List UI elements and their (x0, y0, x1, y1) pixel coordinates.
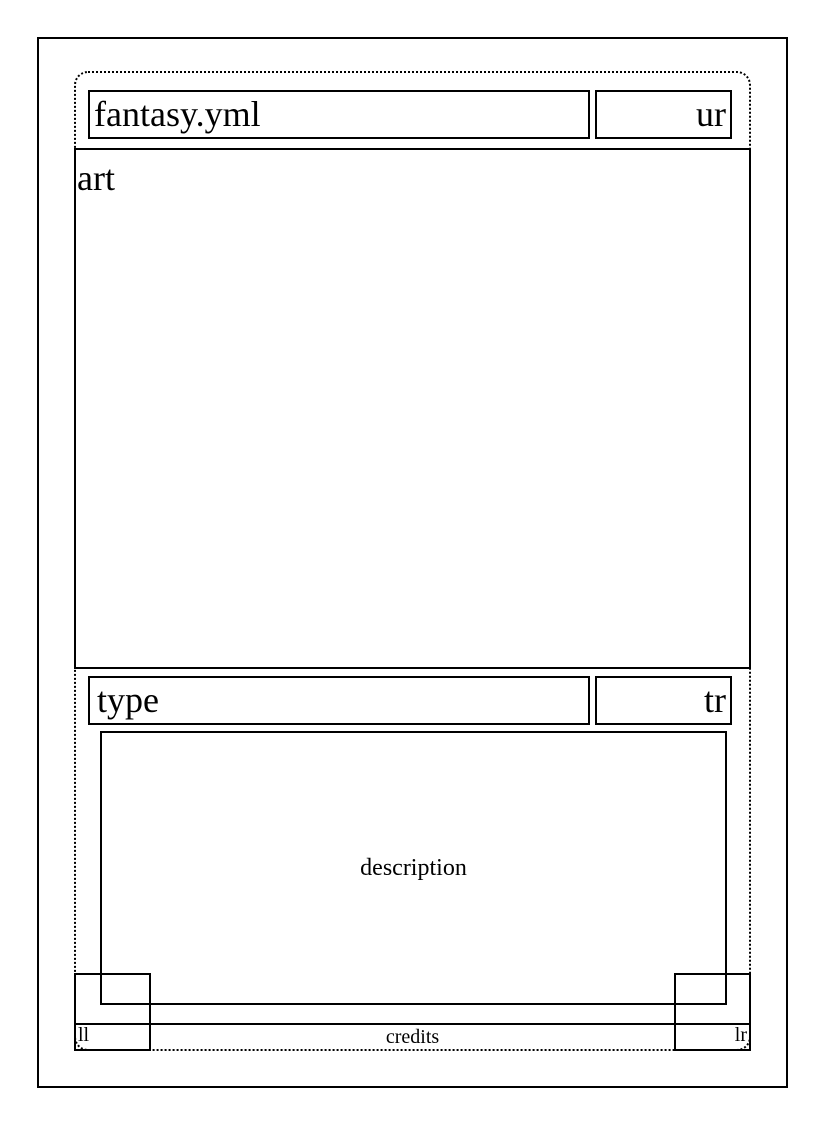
lower-left-label: ll (78, 1024, 89, 1046)
upper-right-label: ur (696, 94, 726, 134)
description-label: description (360, 855, 467, 882)
lower-left-box: ll (74, 973, 151, 1051)
card-layout-preview: fantasy.yml ur art type tr description c… (0, 0, 825, 1125)
lower-right-box: lr (674, 973, 751, 1051)
description-box: description (100, 731, 727, 1005)
art-label: art (77, 158, 115, 198)
type-right-box: tr (595, 676, 732, 725)
title-box: fantasy.yml (88, 90, 590, 139)
type-box: type (88, 676, 590, 725)
credits-label: credits (386, 1026, 439, 1048)
type-label: type (97, 680, 159, 720)
lower-right-label: lr (735, 1024, 747, 1046)
credits-bar: credits (74, 1023, 751, 1051)
upper-right-box: ur (595, 90, 732, 139)
type-right-label: tr (704, 680, 726, 720)
art-box: art (74, 148, 751, 669)
title-label: fantasy.yml (94, 94, 261, 134)
